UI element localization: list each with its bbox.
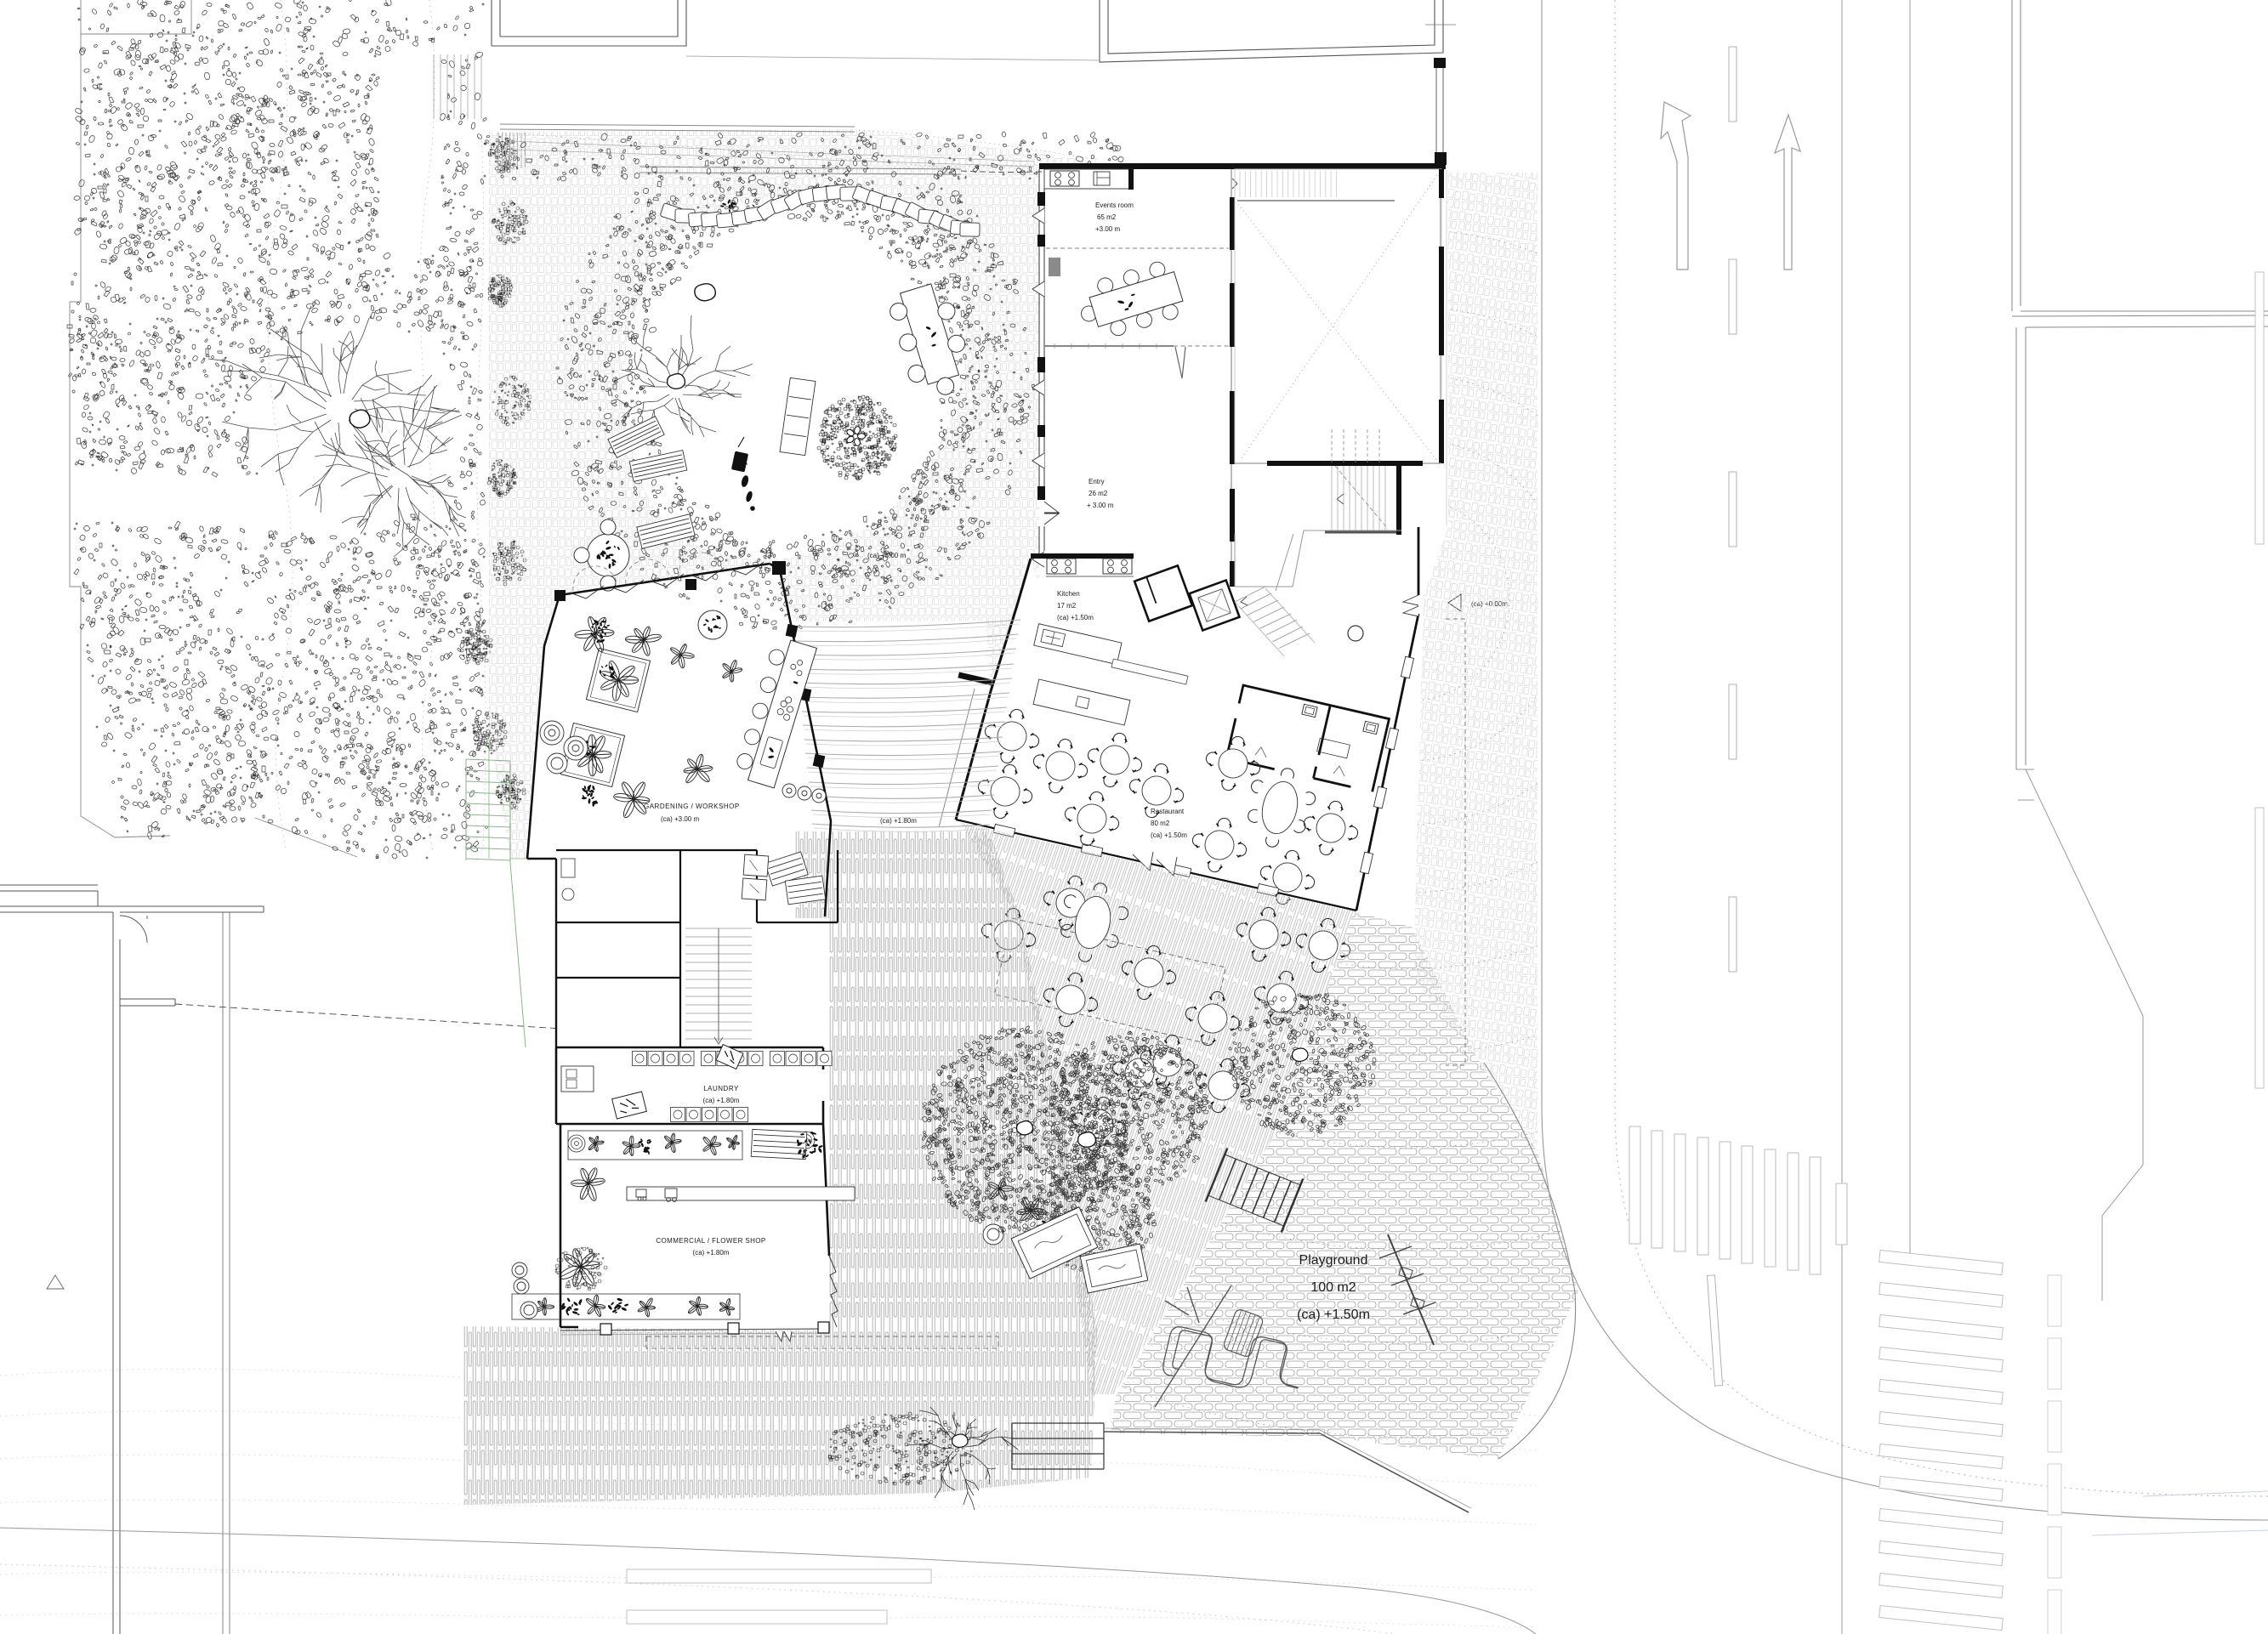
svg-text:(ca) +1.80m: (ca) +1.80m: [880, 817, 917, 825]
svg-text:COMMERCIAL / FLOWER SHOP: COMMERCIAL / FLOWER SHOP: [656, 1237, 765, 1245]
svg-text:GARDENING / WORKSHOP: GARDENING / WORKSHOP: [644, 803, 740, 810]
svg-text:(ca) +3.00 m: (ca) +3.00 m: [661, 815, 699, 823]
svg-text:Entry: Entry: [1089, 478, 1105, 485]
svg-text:(ca) +3.00 m: (ca) +3.00 m: [867, 552, 906, 559]
svg-text:17 m2: 17 m2: [1057, 602, 1077, 610]
svg-text:Events room: Events room: [1095, 201, 1134, 209]
svg-text:80 m2: 80 m2: [1151, 820, 1170, 827]
svg-text:(ca) +1.50m: (ca) +1.50m: [1297, 1308, 1370, 1322]
svg-text:Playground: Playground: [1299, 1253, 1368, 1268]
svg-text:+ 3.00 m: + 3.00 m: [1087, 502, 1114, 509]
svg-text:(ca) +1.50m: (ca) +1.50m: [1057, 614, 1094, 621]
svg-text:26 m2: 26 m2: [1089, 490, 1108, 497]
svg-text:(ca) +1.80m: (ca) +1.80m: [703, 1097, 740, 1104]
svg-text:100 m2: 100 m2: [1310, 1280, 1356, 1295]
svg-text:65 m2: 65 m2: [1097, 213, 1117, 221]
svg-text:LAUNDRY: LAUNDRY: [703, 1085, 739, 1092]
svg-text:+3.00 m: +3.00 m: [1095, 225, 1120, 233]
svg-text:Kitchen: Kitchen: [1057, 590, 1080, 598]
svg-text:Restaurant: Restaurant: [1151, 808, 1185, 815]
svg-text:(ca) +1.50m: (ca) +1.50m: [1151, 831, 1187, 839]
svg-text:(ca) +1.80m: (ca) +1.80m: [693, 1249, 730, 1257]
